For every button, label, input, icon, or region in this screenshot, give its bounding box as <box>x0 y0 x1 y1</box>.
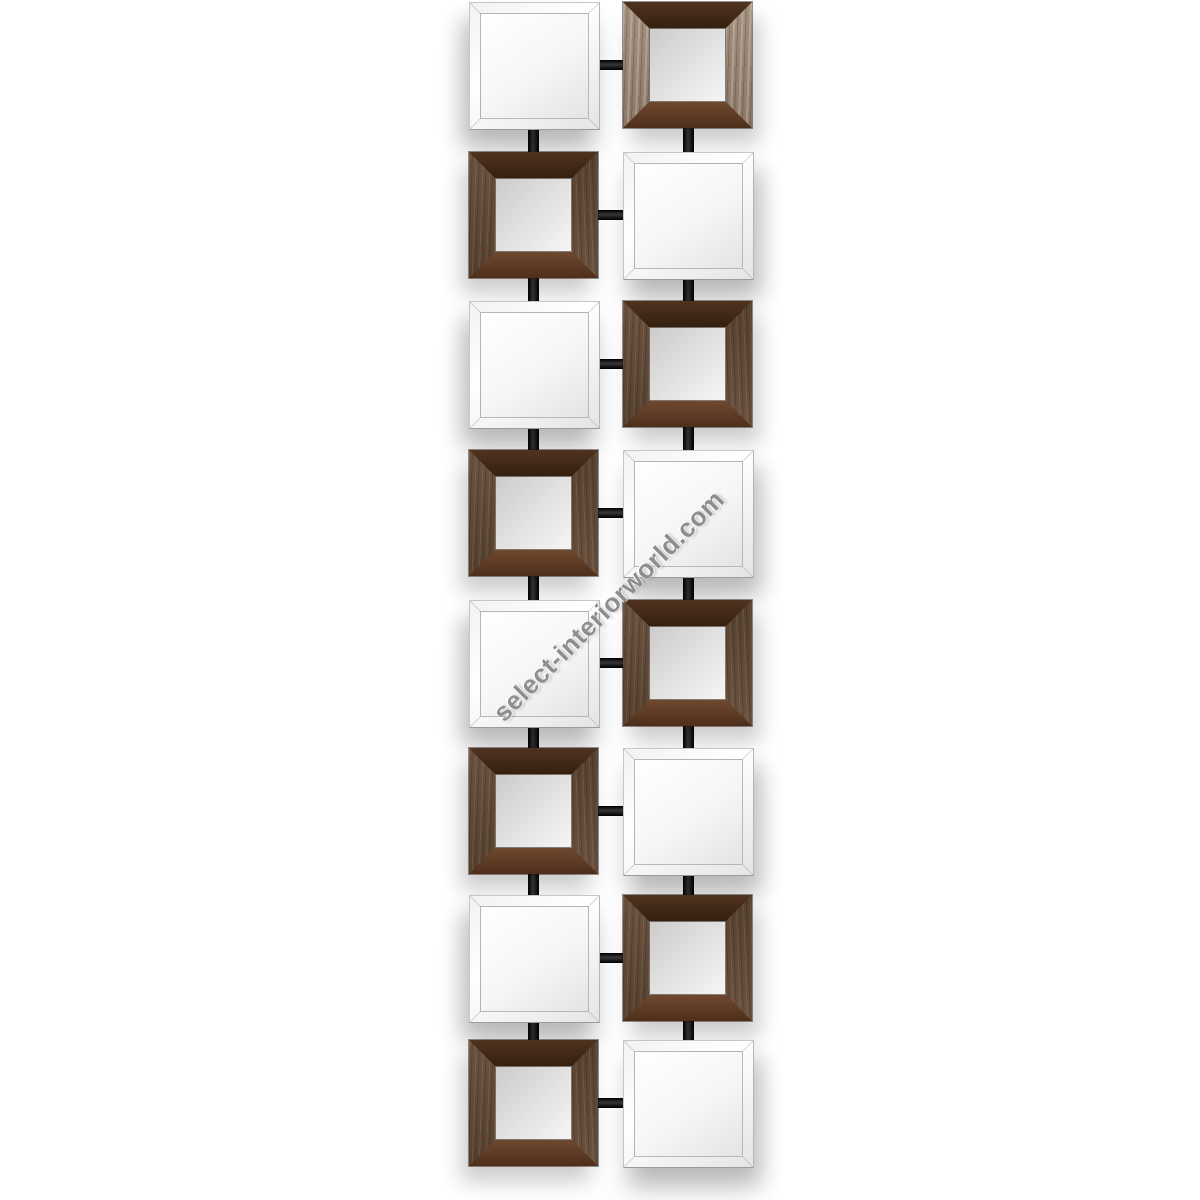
beveled-mirror-tile <box>469 301 600 429</box>
wood-framed-mirror-tile <box>623 600 752 726</box>
beveled-mirror-tile <box>469 895 600 1023</box>
beveled-mirror-tile <box>469 2 600 130</box>
mirror-bevel <box>634 1051 743 1157</box>
wood-framed-mirror-tile <box>623 895 752 1021</box>
framed-mirror-glass <box>649 921 726 995</box>
wood-framed-mirror-tile <box>469 1040 598 1166</box>
wood-framed-mirror-tile <box>623 301 752 427</box>
wood-framed-mirror-tile <box>469 152 598 278</box>
mirror-bevel <box>634 163 743 269</box>
mirror-bevel <box>480 906 589 1012</box>
beveled-mirror-tile <box>623 152 754 280</box>
product-photo-canvas: select-interiorworld.com <box>0 0 1200 1200</box>
wood-framed-mirror-tile <box>623 2 752 128</box>
framed-mirror-glass <box>649 28 726 102</box>
beveled-mirror-tile <box>623 1040 754 1168</box>
mirror-bevel <box>634 759 743 865</box>
framed-mirror-glass <box>495 476 572 550</box>
framed-mirror-glass <box>495 1066 572 1140</box>
wood-framed-mirror-tile <box>469 748 598 874</box>
beveled-mirror-tile <box>623 748 754 876</box>
mirror-bevel <box>480 13 589 119</box>
framed-mirror-glass <box>649 626 726 700</box>
mirror-bevel <box>480 312 589 418</box>
wood-framed-mirror-tile <box>469 450 598 576</box>
framed-mirror-glass <box>649 327 726 401</box>
framed-mirror-glass <box>495 774 572 848</box>
framed-mirror-glass <box>495 178 572 252</box>
